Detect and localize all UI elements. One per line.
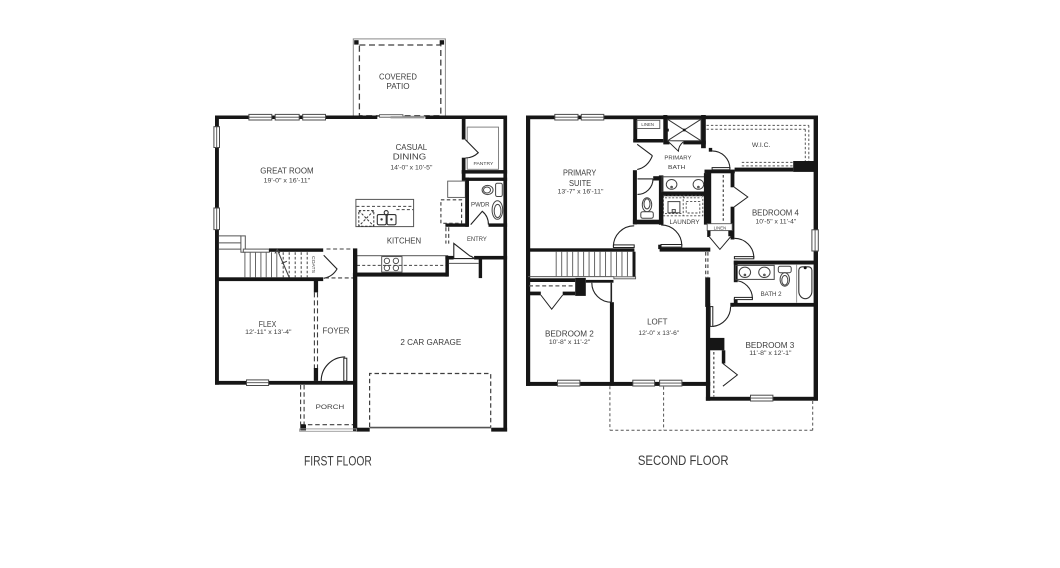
svg-text:2 CAR GARAGE: 2 CAR GARAGE: [400, 337, 461, 347]
svg-text:KITCHEN: KITCHEN: [387, 236, 421, 246]
svg-text:CASUAL: CASUAL: [396, 142, 428, 152]
svg-text:DINING: DINING: [393, 152, 427, 162]
svg-text:10'-5" x 11'-4": 10'-5" x 11'-4": [756, 219, 797, 226]
svg-text:FLEX: FLEX: [259, 319, 277, 329]
svg-text:LINEN: LINEN: [641, 122, 654, 127]
svg-text:COATS: COATS: [310, 256, 316, 273]
svg-text:SECOND FLOOR: SECOND FLOOR: [638, 452, 729, 468]
svg-text:14'-0" x 10'-5": 14'-0" x 10'-5": [390, 164, 433, 171]
svg-text:PATIO: PATIO: [386, 81, 409, 91]
svg-text:12'-11" x 13'-4": 12'-11" x 13'-4": [245, 329, 292, 336]
svg-text:PRIMARY: PRIMARY: [664, 156, 691, 162]
svg-text:PRIMARY: PRIMARY: [563, 167, 597, 177]
svg-text:10'-8" x 11'-2": 10'-8" x 11'-2": [549, 339, 591, 346]
svg-text:11'-8" x 12'-1": 11'-8" x 12'-1": [749, 350, 792, 357]
svg-text:SUITE: SUITE: [569, 178, 591, 188]
svg-text:LOFT: LOFT: [647, 317, 668, 327]
svg-text:LINEN: LINEN: [714, 226, 727, 231]
svg-text:BATH 2: BATH 2: [761, 291, 783, 298]
svg-text:BEDROOM 2: BEDROOM 2: [545, 329, 594, 339]
svg-text:COVERED: COVERED: [379, 71, 417, 81]
svg-text:GREAT ROOM: GREAT ROOM: [260, 166, 313, 176]
svg-text:19'-0" x 16'-11": 19'-0" x 16'-11": [264, 177, 311, 184]
svg-text:12'-0" x 13'-6": 12'-0" x 13'-6": [638, 330, 679, 337]
svg-text:ENTRY: ENTRY: [467, 236, 487, 243]
svg-text:W.I.C.: W.I.C.: [752, 142, 771, 149]
svg-text:13'-7" x 16'-11": 13'-7" x 16'-11": [558, 188, 605, 195]
svg-text:FOYER: FOYER: [323, 325, 350, 335]
svg-text:BEDROOM 3: BEDROOM 3: [745, 340, 794, 350]
svg-text:BEDROOM 4: BEDROOM 4: [752, 208, 799, 218]
svg-text:PANTRY: PANTRY: [474, 161, 494, 166]
svg-text:PORCH: PORCH: [316, 404, 345, 411]
svg-text:PWDR: PWDR: [471, 201, 490, 208]
svg-text:LAUNDRY: LAUNDRY: [670, 220, 700, 226]
svg-text:BATH: BATH: [668, 165, 685, 171]
svg-text:FIRST FLOOR: FIRST FLOOR: [304, 453, 372, 469]
